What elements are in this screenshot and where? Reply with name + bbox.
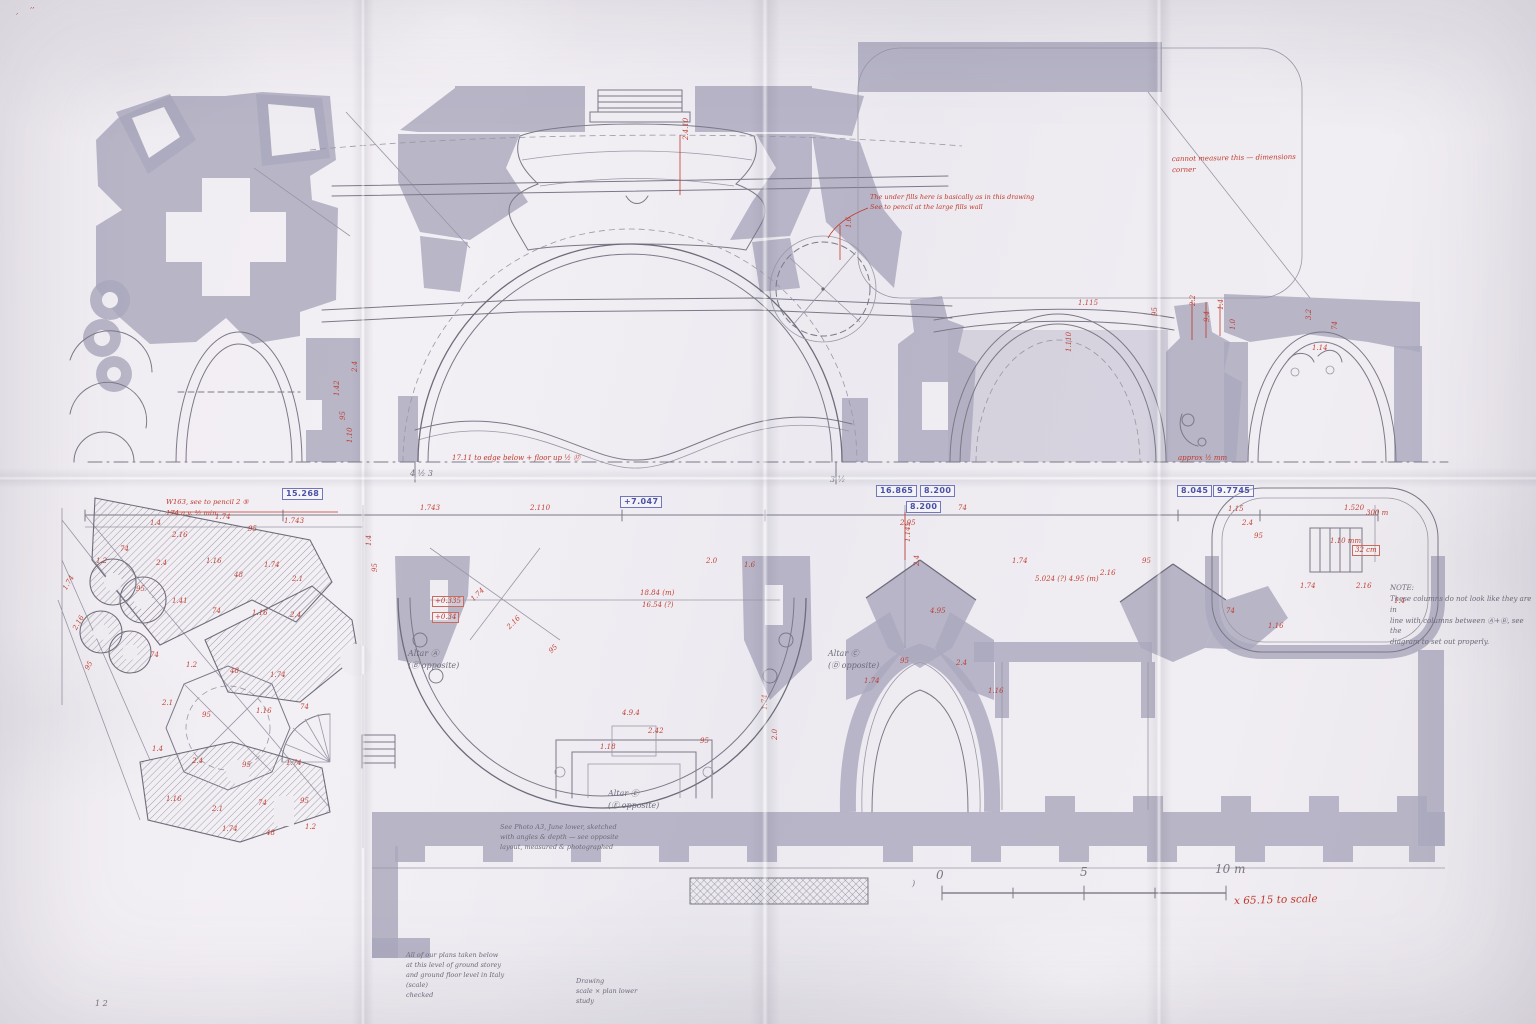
altar-a-label: Altar Ⓐ(Ⓑ opposite)	[408, 648, 459, 673]
altar-label-line: (Ⓕ opposite)	[608, 800, 659, 812]
pencil-note-line: These columns do not look like they are …	[1390, 594, 1536, 616]
fold-crease-vertical-center	[750, 0, 780, 1024]
photo-note: See Photo A3, June lower, sketchedwith a…	[500, 822, 619, 852]
red-datum-note-left: 17.11 to edge below + floor up ½ ⑰	[452, 455, 580, 462]
altar-label-line: Altar Ⓔ	[608, 788, 659, 800]
red-note-chain-left: W163, see to pencil 2 ⑤174 a.v. ½ min	[166, 497, 249, 519]
scalebar-tick-5: 5	[1080, 866, 1088, 878]
altar-label-line: Altar Ⓐ	[408, 648, 459, 660]
scalebar-tick-10m: 10 m	[1215, 863, 1245, 875]
pencil-note-line: line with columns between Ⓐ+Ⓑ, see the	[1390, 616, 1536, 638]
scalebar-tick-0: 0	[936, 869, 944, 881]
altar-label-line: (Ⓓ opposite)	[828, 660, 879, 672]
pencil-note-line: NOTE:	[1390, 583, 1536, 594]
folded-drawing-sheet: 2.4.101.61.1151.110952.29.41.41.03.21.14…	[0, 0, 1536, 1024]
pencil-note-line: checked	[406, 990, 504, 1000]
red-note-line: See to pencil at the large fills wall	[870, 202, 1034, 212]
altar-c-label: Altar Ⓒ(Ⓓ opposite)	[828, 648, 879, 673]
pencil-note-line: layout, measured & photographed	[500, 842, 619, 852]
pencil-note-line: with angles & depth — see opposite	[500, 832, 619, 842]
red-datum-note-right: approx ½ mm	[1178, 455, 1227, 462]
fold-crease-horizontal	[0, 468, 1536, 488]
pencil-note-line: study	[576, 996, 637, 1006]
red-note-line: The under fills here is basically as in …	[870, 192, 1034, 202]
red-note-line: 174 a.v. ½ min	[166, 508, 249, 519]
pencil-note-line: See Photo A3, June lower, sketched	[500, 822, 619, 832]
altar-label-line: (Ⓑ opposite)	[408, 660, 459, 672]
note-columns: NOTE:These columns do not look like they…	[1390, 583, 1536, 648]
pencil-note-line: Drawing	[576, 976, 637, 986]
red-note-line: W163, see to pencil 2 ⑤	[166, 497, 249, 508]
scale-factor-note: x 65.15 to scale	[1234, 894, 1318, 907]
pencil-note-line: diagram to set out properly.	[1390, 637, 1536, 648]
pencil-note-line: (scale)	[406, 980, 504, 990]
bottom-left-note: All of our plans taken belowat this leve…	[406, 950, 504, 1000]
fold-crease-vertical-left	[352, 0, 374, 1024]
altar-label-line: Altar Ⓒ	[828, 648, 879, 660]
red-note-top-right: cannot measure this — dimensionscorner	[1172, 152, 1296, 177]
red-note-line: corner	[1172, 163, 1296, 176]
fold-crease-vertical-right	[1146, 0, 1172, 1024]
pencil-note-line: scale × plan lower	[576, 986, 637, 996]
altar-e-label: Altar Ⓔ(Ⓕ opposite)	[608, 788, 659, 813]
bottom-center-note: Drawingscale × plan lowerstudy	[576, 976, 637, 1006]
pencil-note-line: at this level of ground storey	[406, 960, 504, 970]
pencil-note-line: All of our plans taken below	[406, 950, 504, 960]
red-note-center: The under fills here is basically as in …	[870, 192, 1034, 213]
pencil-note-line: and ground floor level in Italy	[406, 970, 504, 980]
